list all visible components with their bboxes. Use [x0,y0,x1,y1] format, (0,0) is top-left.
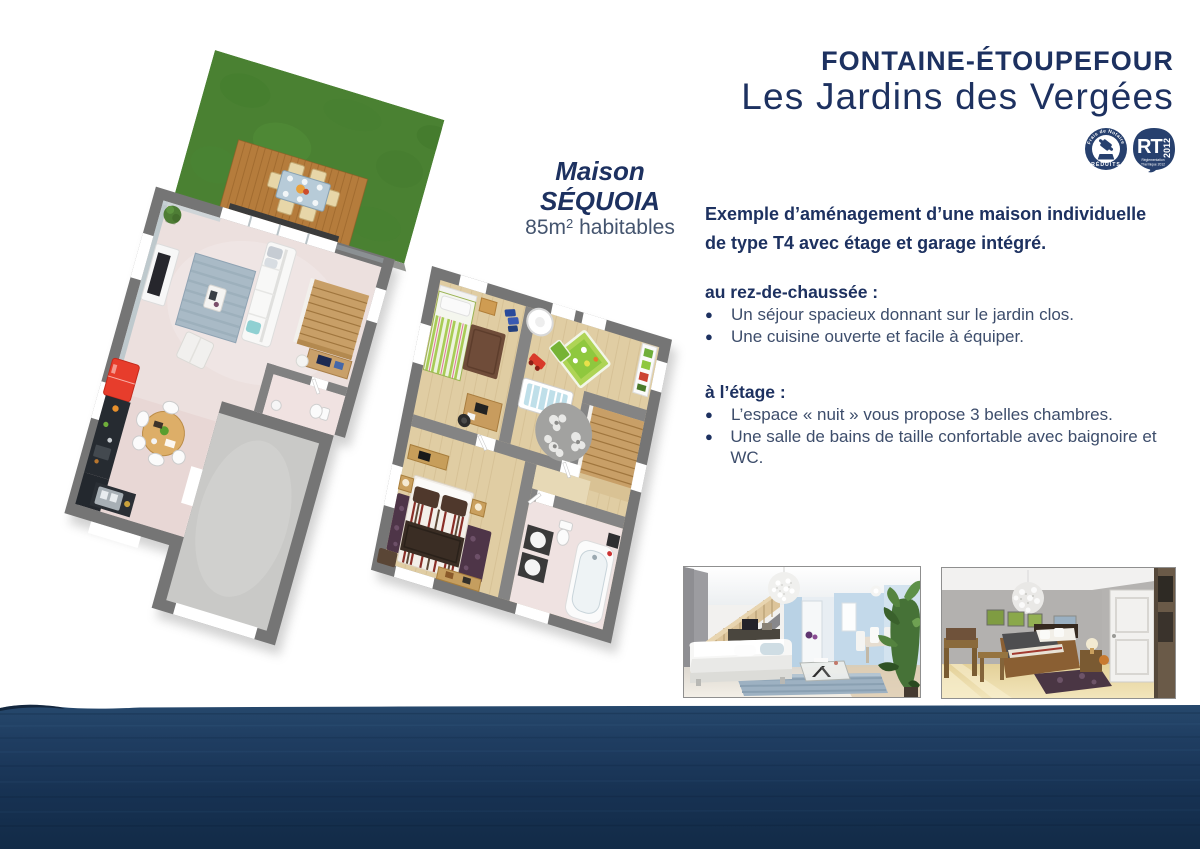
svg-text:Thermique 2012: Thermique 2012 [1141,163,1165,167]
svg-text:RT: RT [1137,136,1162,158]
svg-text:2012: 2012 [1162,138,1172,158]
svg-text:RÉDUITS: RÉDUITS [1091,160,1121,168]
svg-text:Réglementation: Réglementation [1141,158,1164,162]
